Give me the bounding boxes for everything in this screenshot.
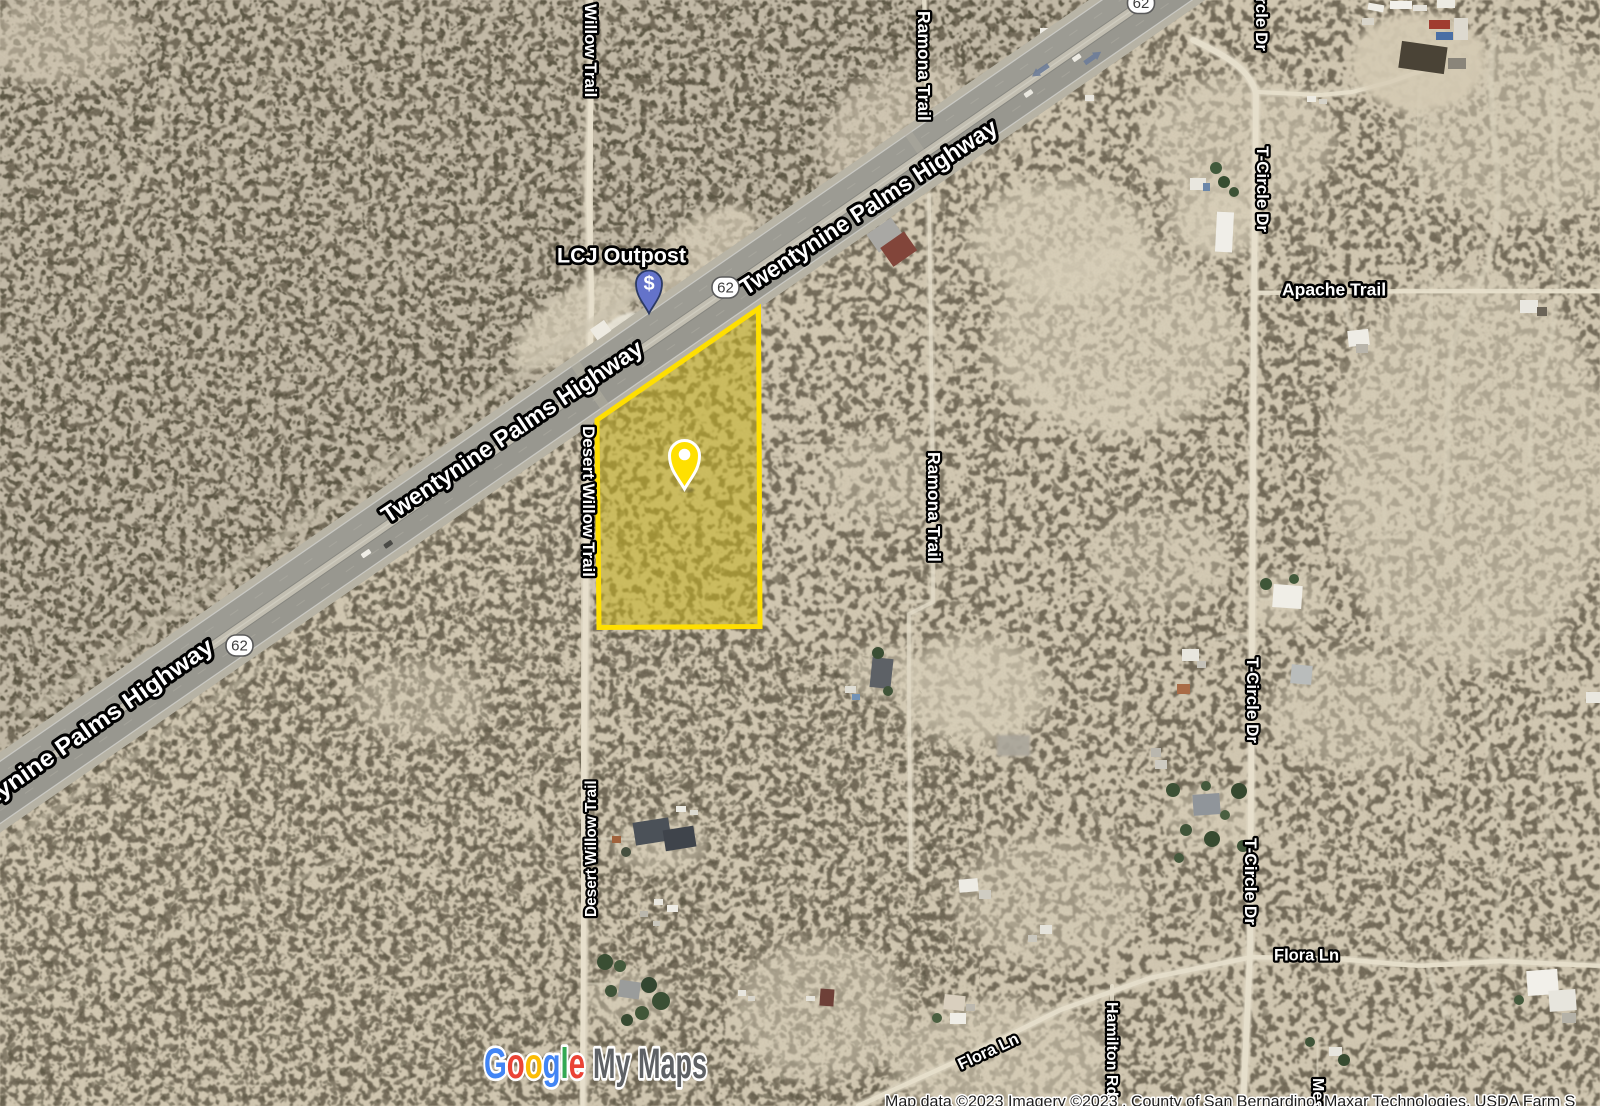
svg-text:Ramona Trail: Ramona Trail [924,452,944,562]
svg-text:LCJ Outpost: LCJ Outpost [557,244,686,268]
svg-text:62: 62 [717,280,734,297]
svg-text:Flora Ln: Flora Ln [1274,947,1339,965]
svg-text:T-Circle Dr: T-Circle Dr [1252,0,1271,51]
svg-text:T-Circle Dr: T-Circle Dr [1241,838,1260,925]
svg-text:Desert Willow Trail: Desert Willow Trail [583,780,600,917]
svg-text:Google: Google [484,1040,585,1088]
svg-text:62: 62 [1133,0,1150,12]
svg-text:Willow Trail: Willow Trail [581,4,600,97]
svg-text:Hamilton Rd: Hamilton Rd [1103,1002,1120,1096]
svg-text:T-Circle Dr: T-Circle Dr [1243,657,1262,743]
svg-text:Ramona Trail: Ramona Trail [914,11,934,121]
svg-text:62: 62 [231,638,248,655]
svg-text:Desert Willow Trail: Desert Willow Trail [579,426,598,577]
svg-text:My Maps: My Maps [593,1040,707,1088]
svg-text:Apache Trail: Apache Trail [1282,280,1386,300]
svg-text:T-Circle Dr: T-Circle Dr [1253,146,1272,232]
svg-text:$: $ [643,273,654,295]
svg-text:Map data ©2023 Imagery ©2023 ,: Map data ©2023 Imagery ©2023 , County of… [885,1094,1575,1106]
